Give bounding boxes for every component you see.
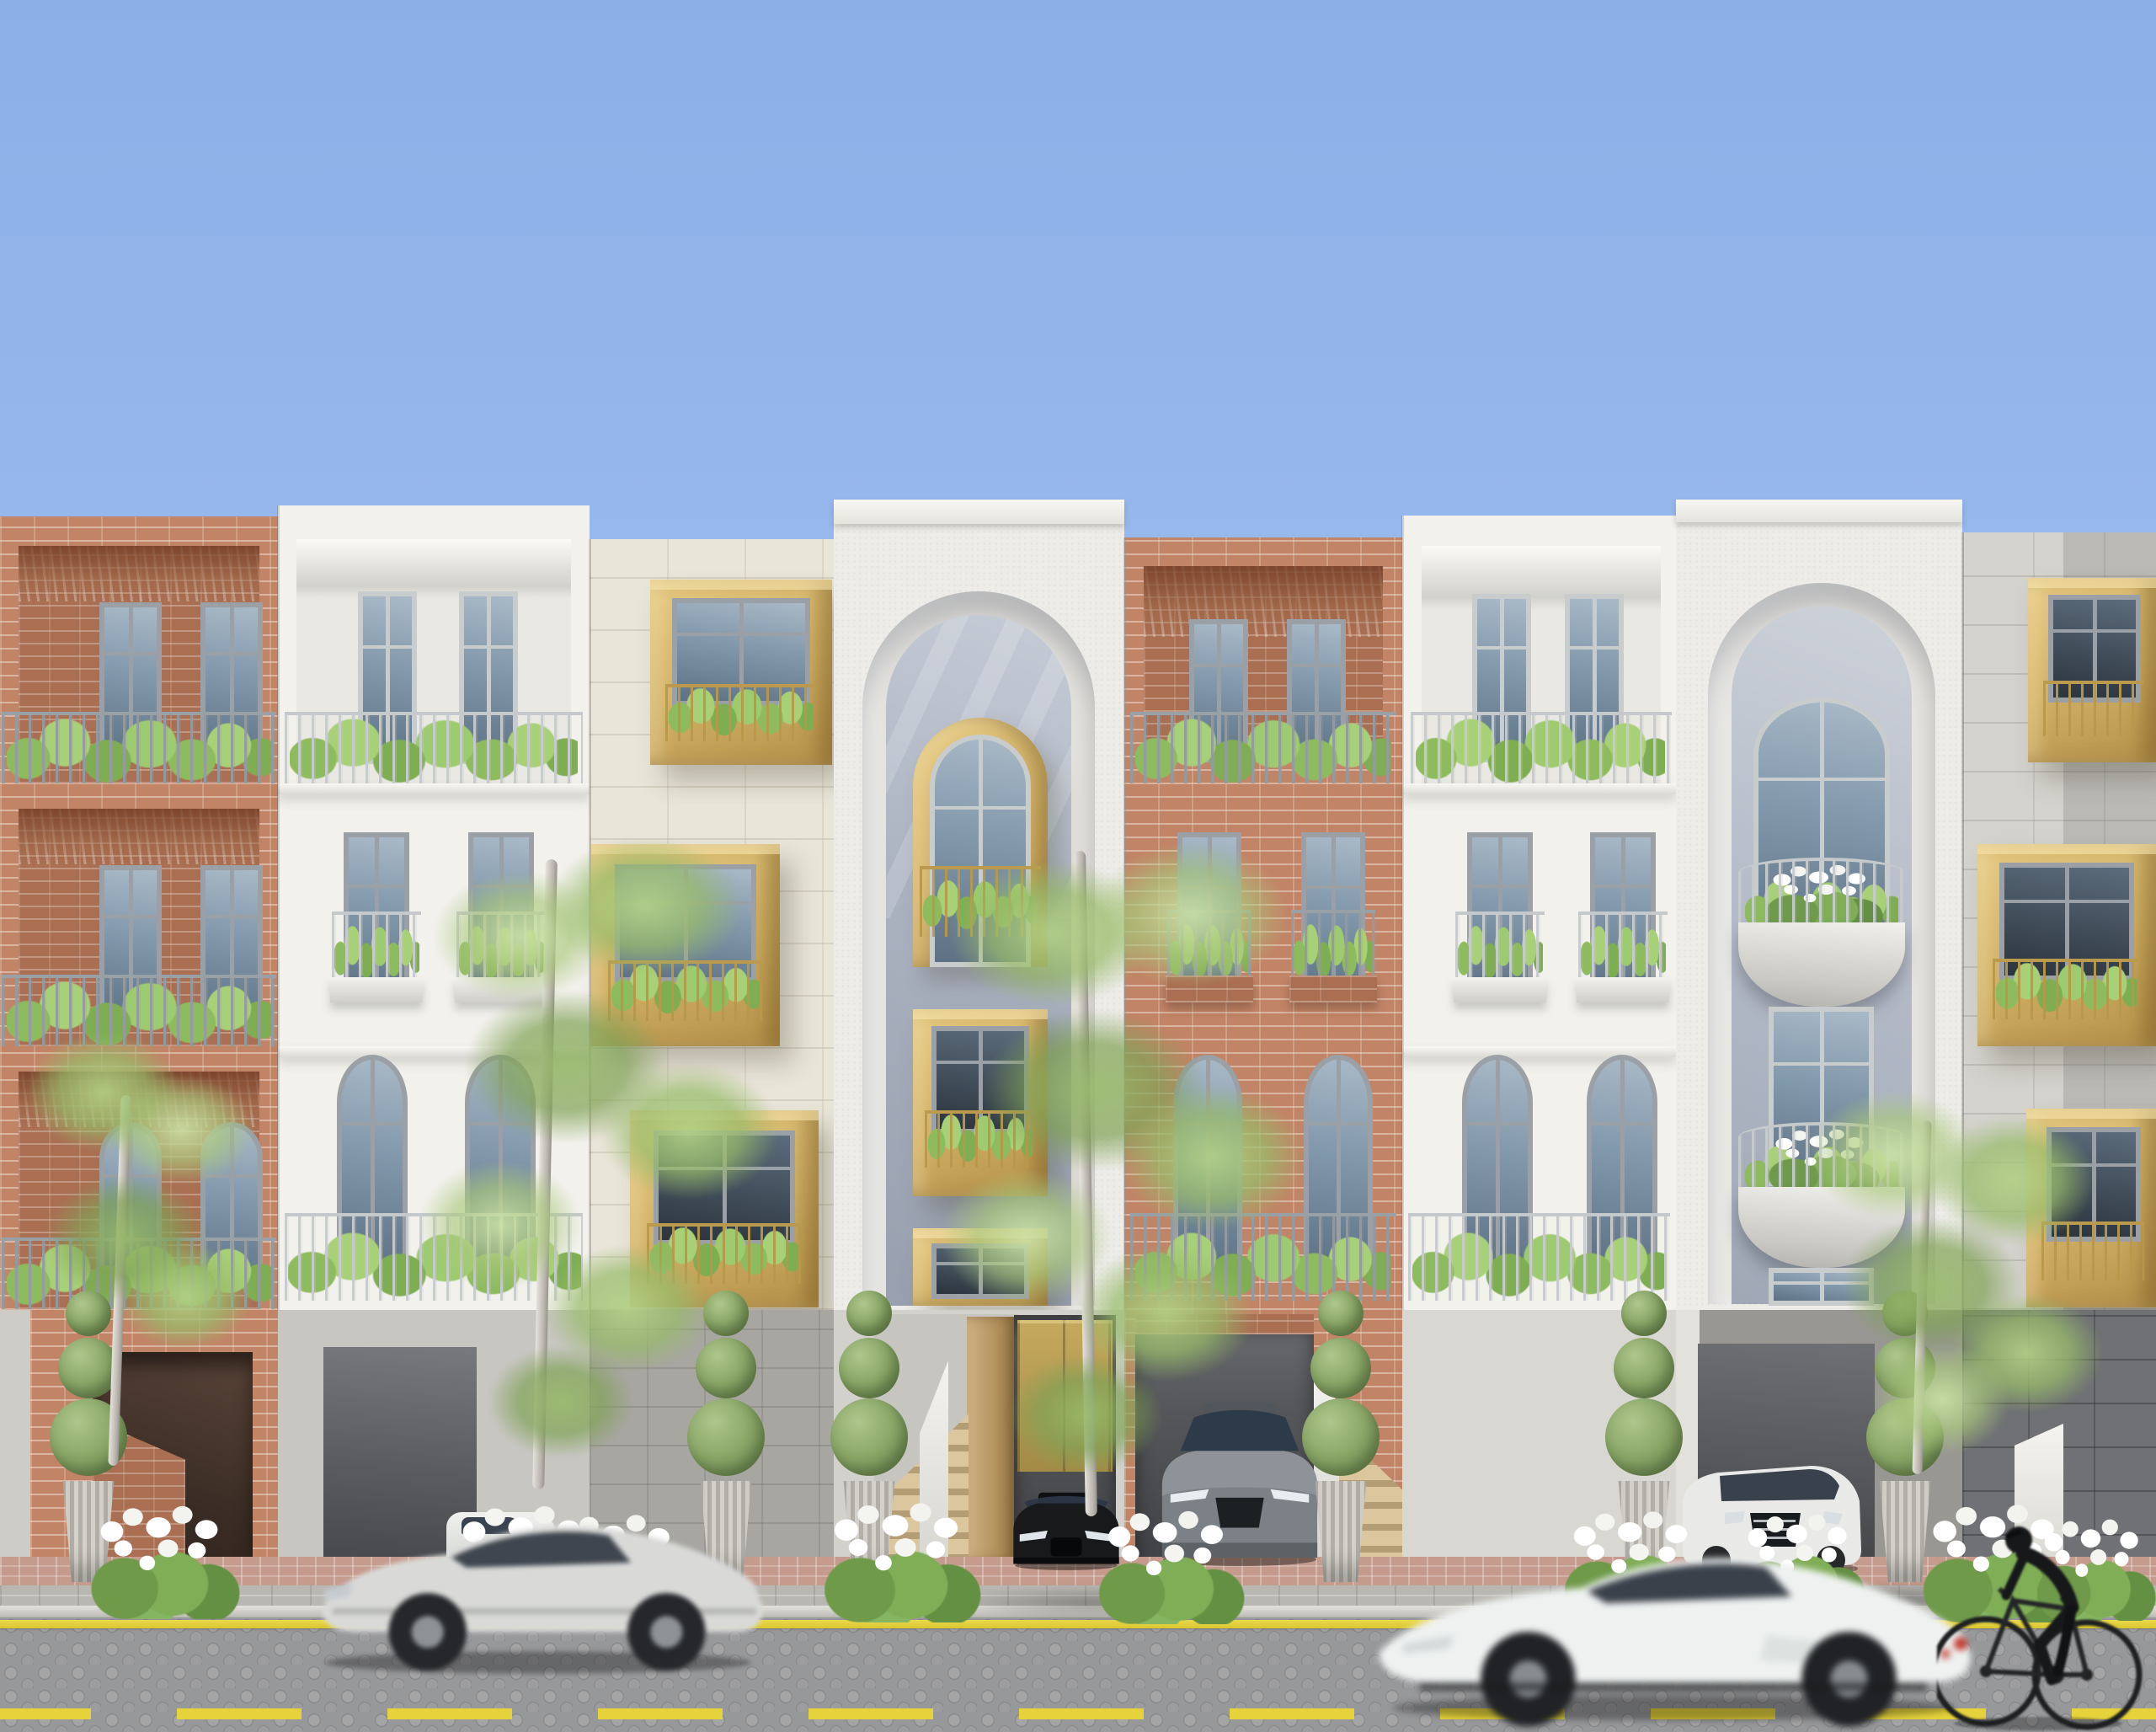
floor-slab xyxy=(1402,1046,1676,1057)
balcony-railing xyxy=(1130,712,1396,783)
white-supercar xyxy=(1369,1486,1976,1729)
flower-bush xyxy=(80,1501,240,1619)
facade-seam xyxy=(1401,516,1404,1310)
silver-coupe xyxy=(307,1479,769,1676)
loggia-soffit xyxy=(1144,566,1383,637)
loggia-soffit xyxy=(296,539,571,598)
balcony-railing xyxy=(332,911,421,977)
floor-slab xyxy=(278,783,590,794)
curved-balcony-railing xyxy=(1738,858,1905,925)
gold-railing xyxy=(665,684,817,741)
cyclist xyxy=(1937,1473,2143,1732)
podium-pier xyxy=(0,1310,30,1580)
gold-railing xyxy=(1993,959,2141,1019)
balcony-railing xyxy=(1411,712,1672,783)
balcony-railing xyxy=(285,712,583,783)
loggia-soffit xyxy=(19,546,259,601)
building-white-loggia-2 xyxy=(1402,516,1676,1310)
planter-box xyxy=(1577,977,1669,1002)
flower-bush xyxy=(813,1498,981,1622)
planter-box xyxy=(1289,976,1377,1002)
street-scene xyxy=(0,0,2156,1732)
parapet-cap xyxy=(834,500,1124,524)
parapet-cap xyxy=(1676,500,1962,522)
balcony-railing xyxy=(2,975,276,1046)
flower-bush xyxy=(1088,1506,1245,1624)
gold-box-balcony xyxy=(2028,578,2156,762)
planter-box xyxy=(330,977,423,1002)
balcony-railing xyxy=(1291,910,1375,976)
floor-slab xyxy=(1402,783,1676,794)
planter-box xyxy=(1454,977,1546,1002)
gold-railing xyxy=(2043,681,2144,736)
loggia-soffit xyxy=(1422,546,1661,610)
balcony-railing xyxy=(1408,1213,1670,1301)
gold-box-balcony xyxy=(1977,844,2156,1046)
gold-box-balcony xyxy=(650,580,832,765)
balcony-railing xyxy=(1578,911,1668,977)
balcony-railing xyxy=(2,712,276,783)
balcony-railing xyxy=(1455,911,1545,977)
facade-seam xyxy=(277,505,280,1310)
loggia-soffit xyxy=(19,809,259,864)
